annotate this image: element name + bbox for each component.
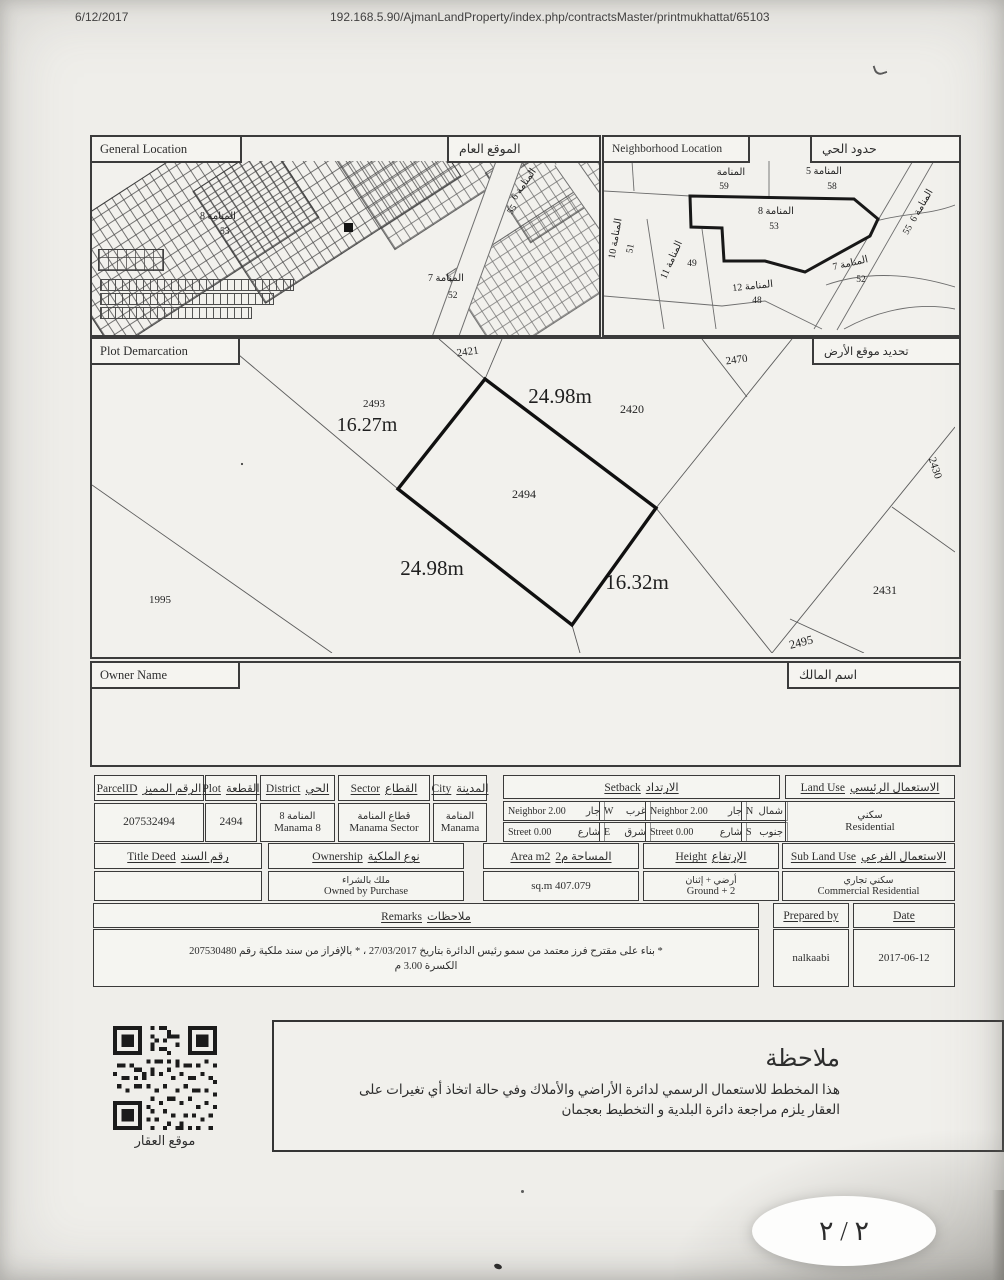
landuse-value: سكنيResidential	[785, 801, 955, 842]
ownership-label-ar: نوع الملكية	[368, 851, 420, 863]
district-header: الحيDistrict	[260, 775, 335, 801]
area-num: 58	[827, 182, 837, 192]
owner-label: Owner Name	[100, 668, 167, 683]
setback-south-dir: Sجنوب	[741, 822, 788, 842]
area-num: 48	[752, 296, 762, 306]
city-block	[98, 249, 164, 271]
sublanduse-label-ar: الاستعمال الفرعي	[861, 851, 946, 863]
setback-east-value: Street 0.00شارع	[503, 822, 605, 842]
owner-label-ar: اسم المالك	[799, 667, 857, 683]
area-num: 52	[856, 275, 866, 285]
landuse-label-ar: الاستعمال الرئيسي	[850, 782, 939, 794]
neighborhood-title-ar: حدود الحي	[810, 135, 961, 163]
remarks-label-en: Remarks	[381, 911, 422, 923]
sublanduse-header: الاستعمال الفرعيSub Land Use	[782, 843, 955, 869]
area-label: المنامة 5	[806, 166, 842, 177]
ink-speck	[521, 1190, 524, 1193]
sector-header: القطاعSector	[338, 775, 430, 801]
print-date: 6/12/2017	[75, 10, 128, 24]
city-label-en: City	[431, 783, 451, 795]
parcel-2430: 2430	[926, 456, 944, 481]
general-location-label-ar: الموقع العام	[459, 141, 521, 157]
area-num: 53	[769, 222, 779, 232]
ownership-value: ملك بالشراءOwned by Purchase	[268, 871, 464, 901]
remarks-label-ar: ملاحظات	[427, 911, 471, 923]
plot-label-ar: القطعة	[226, 783, 260, 795]
neighborhood-title-en: Neighborhood Location	[602, 135, 750, 163]
area-label: المنامة 6	[908, 187, 935, 224]
area-label: المنامة 10	[607, 217, 625, 259]
owner-name-box: Owner Name اسم المالك	[90, 661, 961, 767]
owner-title-en: Owner Name	[90, 661, 240, 689]
preparedby-value: nalkaabi	[773, 929, 849, 987]
general-location-box: General Location الموقع العام المنامة 8 …	[90, 135, 601, 337]
sector-value: قطاع المنامةManama Sector	[338, 803, 430, 842]
titledeed-value	[94, 871, 262, 901]
area-label: المنامة 11	[658, 239, 685, 281]
neighborhood-label: Neighborhood Location	[612, 143, 722, 155]
parcelid-value: 207532494	[94, 803, 204, 842]
neighborhood-map: المنامة 59 المنامة 5 58 المنامة 8 53 الم…	[604, 159, 955, 331]
parcel-2493: 2493	[363, 398, 386, 410]
date-value: 2017-06-12	[853, 929, 955, 987]
general-location-title-ar: الموقع العام	[447, 135, 601, 163]
plot-demarcation-label-ar: تحديد موقع الأرض	[824, 344, 909, 358]
city-label-ar: المدينة	[456, 783, 488, 795]
preparedby-header: Prepared by	[773, 903, 849, 928]
setback-label-ar: الارتداد	[646, 782, 679, 794]
ownership-header: نوع الملكيةOwnership	[268, 843, 464, 869]
setback-label-en: Setback	[604, 782, 640, 794]
titledeed-label-en: Title Deed	[127, 851, 175, 863]
city-value: المنامةManama	[433, 803, 487, 842]
area-label-ar: المساحة م2	[555, 851, 611, 863]
sublanduse-label-en: Sub Land Use	[791, 851, 856, 863]
qr-caption: موقع العقار	[105, 1133, 225, 1149]
sector-label-ar: القطاع	[385, 783, 417, 795]
parcelid-header: الرقم المميزParcelID	[94, 775, 204, 801]
titledeed-label-ar: رقم السند	[181, 851, 229, 863]
area-header: المساحة م2Area m2	[483, 843, 639, 869]
setback-west-value: Neighbor 2.00جار	[503, 801, 605, 821]
plot-demarcation-label: Plot Demarcation	[100, 344, 188, 359]
setback-south-value: Street 0.00شارع	[645, 822, 747, 842]
pen-mark	[873, 62, 888, 76]
date-header: Date	[853, 903, 955, 928]
area-num: 55	[902, 223, 916, 236]
area-label: المنامة 12	[732, 279, 774, 294]
plot-demarcation-title-en: Plot Demarcation	[90, 337, 240, 365]
area-label: المنامة	[717, 167, 745, 178]
row-housing-strip	[100, 293, 274, 305]
edge-shadow	[992, 1190, 1004, 1280]
note-body: هذا المخطط للاستعمال الرسمي لدائرة الأرا…	[334, 1080, 840, 1121]
setback-header: الارتدادSetback	[503, 775, 780, 799]
district-value: المنامة 8Manama 8	[260, 803, 335, 842]
city-header: المدينةCity	[433, 775, 487, 801]
parcel-2470: 2470	[725, 352, 749, 367]
plot-label-en: Plot	[202, 783, 221, 795]
area-label-en: Area m2	[510, 851, 550, 863]
area-num: 59	[719, 182, 729, 192]
general-location-label: General Location	[100, 142, 187, 157]
map-label-district8: المنامة 8	[200, 211, 236, 222]
plot-demarcation-drawing: 2421 2470 2493 16.27m 24.98m 2420 2494 2…	[92, 339, 955, 653]
titledeed-header: رقم السندTitle Deed	[94, 843, 262, 869]
area-label: المنامة 8	[758, 206, 794, 217]
setback-north-dir: Nشمال	[741, 801, 788, 821]
print-url: 192.168.5.90/AjmanLandProperty/index.php…	[330, 10, 770, 24]
parcel-2431: 2431	[873, 583, 897, 597]
height-header: الإرتفاعHeight	[643, 843, 779, 869]
height-value: أرضي + إثنانGround + 2	[643, 871, 779, 901]
note-box: ملاحظة هذا المخطط للاستعمال الرسمي لدائر…	[272, 1020, 1004, 1152]
general-location-map: المنامة 8 53 المنامة 7 52 المنامة 6 55	[92, 161, 599, 335]
dim-right: 16.32m	[605, 570, 669, 594]
parcel-1995: 1995	[149, 594, 172, 606]
area-value: sq.m 407.079	[483, 871, 639, 901]
parcelid-label-en: ParcelID	[97, 783, 138, 795]
setback-east-dir: Eشرق	[599, 822, 651, 842]
page-number: ٢ / ٢	[819, 1216, 869, 1247]
plot-demarcation-title-ar: تحديد موقع الأرض	[812, 337, 961, 365]
ownership-label-en: Ownership	[312, 851, 362, 863]
parcel-2421: 2421	[456, 345, 479, 360]
area-label: المنامة 7	[832, 254, 869, 273]
height-label-ar: الإرتفاع	[712, 851, 747, 863]
district-label-en: District	[266, 783, 301, 795]
remarks-header: ملاحظاتRemarks	[93, 903, 759, 928]
neighborhood-label-ar: حدود الحي	[822, 141, 877, 157]
general-location-title-en: General Location	[90, 135, 242, 163]
parcel-2495: 2495	[788, 632, 815, 651]
subject-plot-marker	[344, 223, 353, 232]
map-label-district8-num: 53	[220, 227, 230, 237]
map-label-district7: المنامة 7	[428, 273, 464, 284]
sublanduse-value: سكني تجاريCommercial Residential	[782, 871, 955, 901]
sector-label-en: Sector	[351, 783, 380, 795]
remarks-value: * بناء على مقترح فرز معتمد من سمو رئيس ا…	[93, 929, 759, 987]
owner-title-ar: اسم المالك	[787, 661, 961, 689]
neighborhood-location-box: Neighborhood Location حدود الحي المنامة	[602, 135, 961, 337]
subject-plot-number: 2494	[512, 487, 536, 501]
area-num: 51	[625, 243, 637, 254]
ink-speck	[493, 1263, 502, 1270]
area-num: 49	[687, 259, 697, 269]
setback-north-value: Neighbor 2.00جار	[645, 801, 747, 821]
plot-header: القطعةPlot	[205, 775, 257, 801]
map-label-district7-num: 52	[448, 291, 458, 301]
landuse-header: الاستعمال الرئيسيLand Use	[785, 775, 955, 799]
speck	[241, 463, 243, 465]
dim-top: 24.98m	[528, 384, 592, 408]
row-housing-strip	[100, 307, 252, 319]
plot-demarcation-box: Plot Demarcation تحديد موقع الأرض	[90, 337, 961, 659]
parcelid-label-ar: الرقم المميز	[142, 783, 201, 795]
district-label-ar: الحي	[305, 783, 329, 795]
dim-bottom: 24.98m	[400, 556, 464, 580]
setback-west-dir: Wغرب	[599, 801, 651, 821]
landuse-label-en: Land Use	[801, 782, 845, 794]
row-housing-strip	[100, 279, 294, 291]
dim-left: 16.27m	[337, 414, 398, 436]
note-title: ملاحظة	[765, 1044, 840, 1073]
height-label-en: Height	[675, 851, 706, 863]
page-number-badge: ٢ / ٢	[752, 1196, 936, 1266]
parcel-2420: 2420	[620, 402, 644, 416]
plot-value: 2494	[205, 803, 257, 842]
printed-land-plan-page: 6/12/2017 192.168.5.90/AjmanLandProperty…	[0, 0, 1004, 1280]
qr-code	[113, 1026, 217, 1130]
